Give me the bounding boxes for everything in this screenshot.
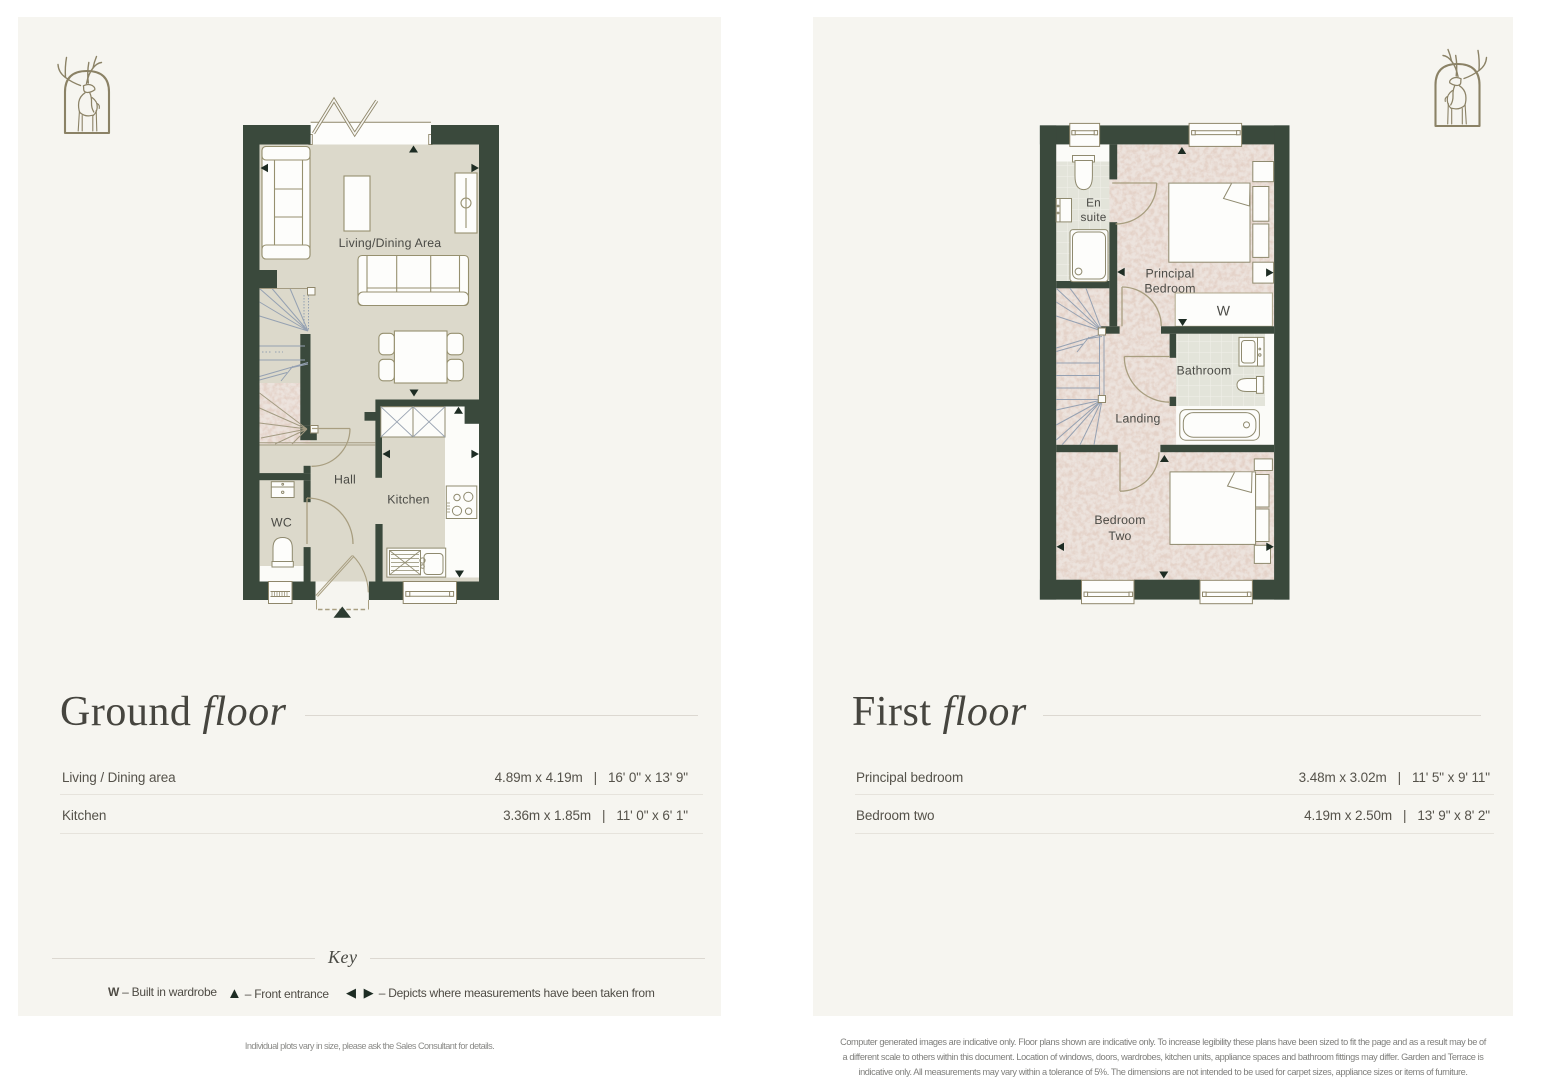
svg-text:W: W <box>1217 303 1231 319</box>
svg-text:suite: suite <box>1081 210 1107 224</box>
svg-text:Bedroom: Bedroom <box>1144 282 1195 296</box>
svg-text:Bathroom: Bathroom <box>1177 364 1232 378</box>
svg-text:Landing: Landing <box>1115 412 1160 426</box>
svg-text:Bedroom: Bedroom <box>1094 513 1145 527</box>
svg-text:Principal: Principal <box>1146 267 1195 281</box>
svg-text:En: En <box>1086 196 1101 210</box>
svg-text:Two: Two <box>1108 529 1131 543</box>
